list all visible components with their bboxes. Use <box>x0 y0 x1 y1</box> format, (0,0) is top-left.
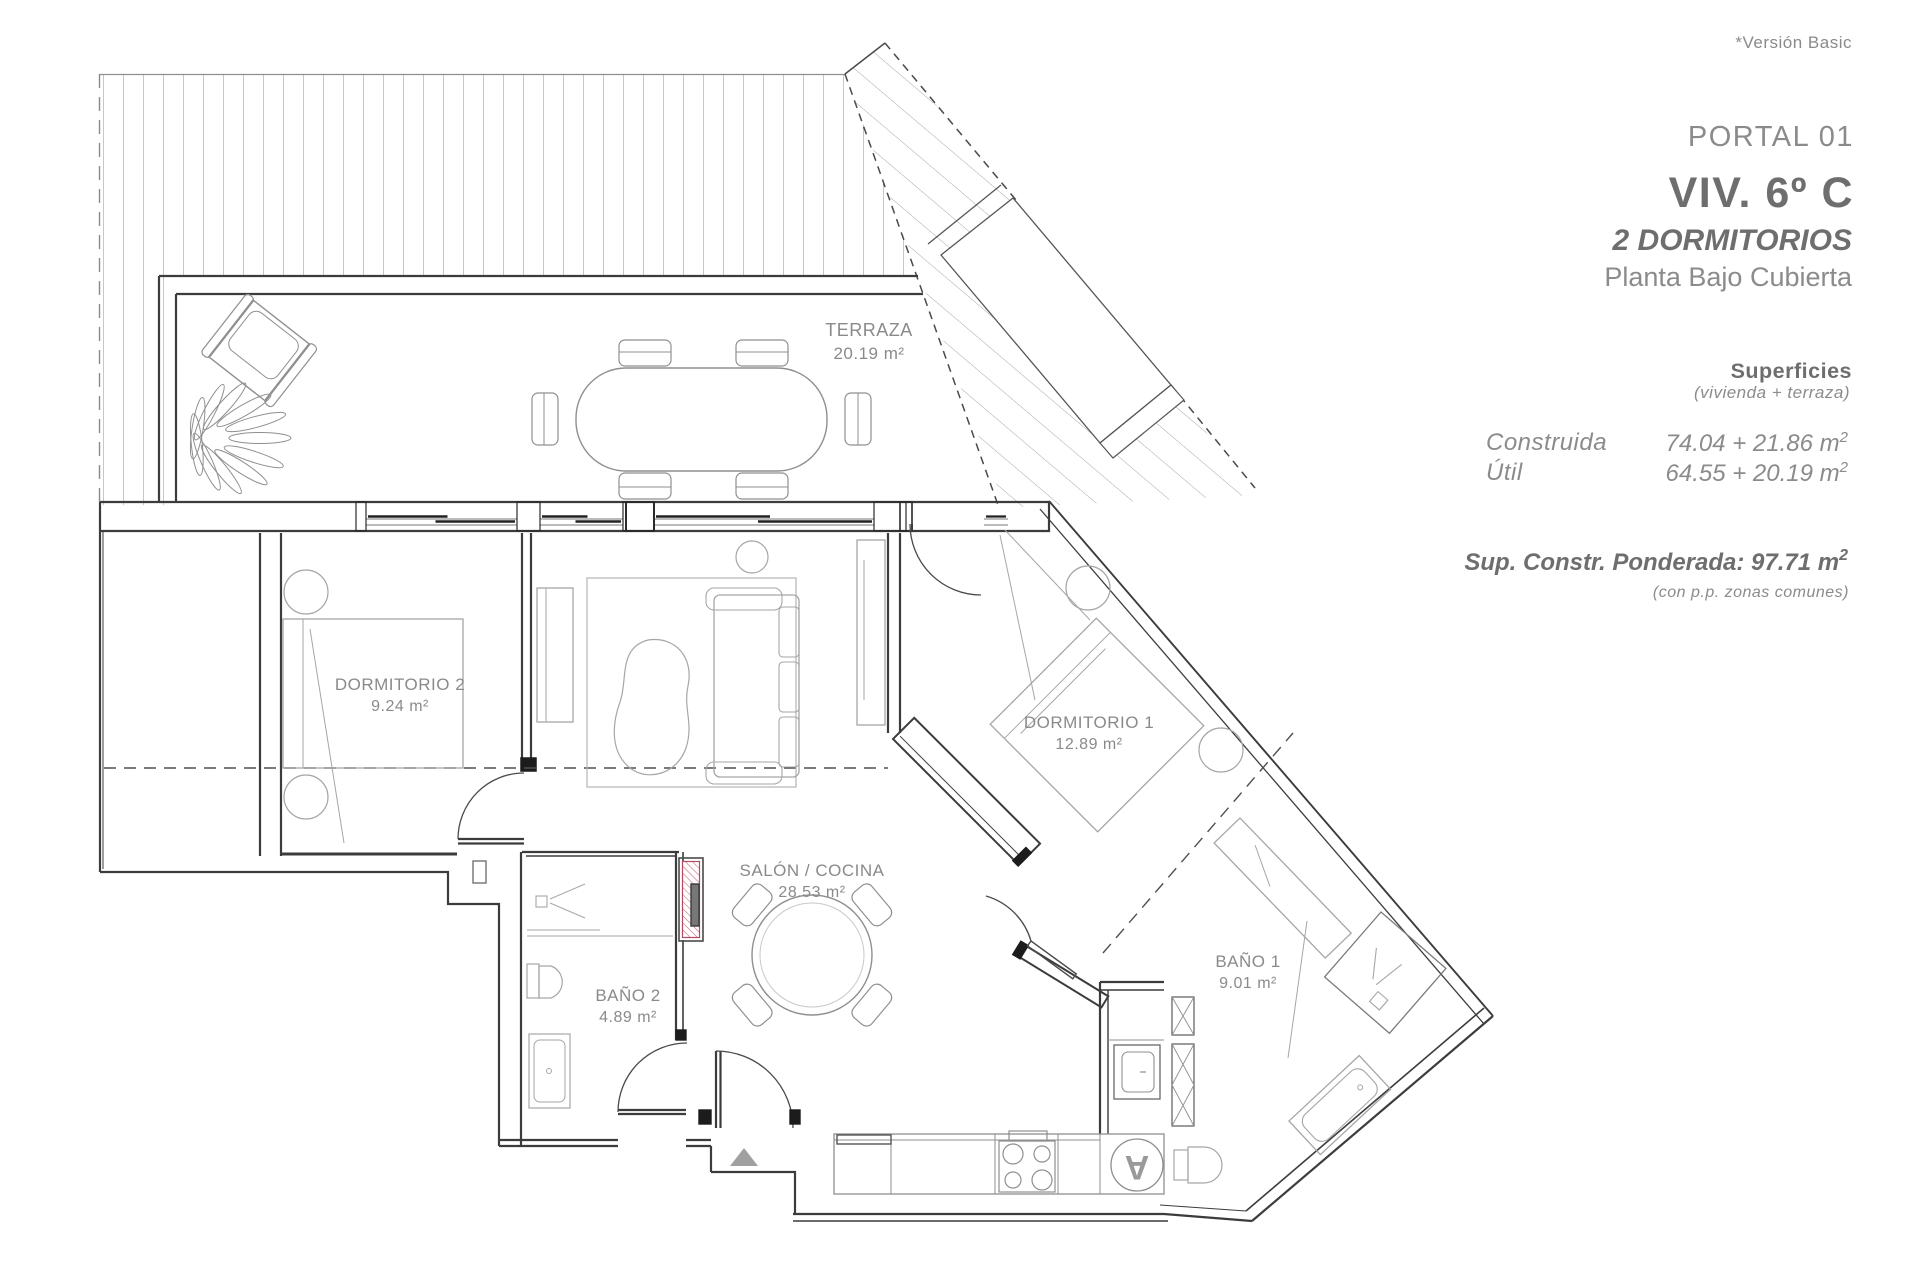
svg-text:Útil: Útil <box>1486 459 1523 486</box>
svg-text:A: A <box>1125 1148 1150 1186</box>
svg-text:9.24 m²: 9.24 m² <box>371 698 429 715</box>
svg-text:28.53 m²: 28.53 m² <box>778 884 845 901</box>
svg-text:SALÓN / COCINA: SALÓN / COCINA <box>740 861 885 880</box>
svg-text:DORMITORIO 1: DORMITORIO 1 <box>1024 713 1154 732</box>
svg-text:20.19 m²: 20.19 m² <box>833 344 904 363</box>
svg-text:4.89 m²: 4.89 m² <box>599 1009 657 1026</box>
svg-text:Construida: Construida <box>1486 429 1607 456</box>
svg-text:BAÑO 2: BAÑO 2 <box>595 986 660 1005</box>
svg-text:9.01 m²: 9.01 m² <box>1219 975 1277 992</box>
svg-text:Superficies: Superficies <box>1731 359 1852 383</box>
svg-text:Sup. Constr. Ponderada: 97.71: Sup. Constr. Ponderada: 97.71 m2 <box>1464 547 1848 576</box>
svg-text:(con p.p. zonas comunes): (con p.p. zonas comunes) <box>1653 584 1849 601</box>
svg-text:64.55 + 20.19 m2: 64.55 + 20.19 m2 <box>1666 459 1849 487</box>
svg-text:VIV. 6º C: VIV. 6º C <box>1669 169 1854 217</box>
svg-text:(vivienda + terraza): (vivienda + terraza) <box>1694 383 1850 402</box>
svg-text:BAÑO 1: BAÑO 1 <box>1215 952 1280 971</box>
svg-text:2 DORMITORIOS: 2 DORMITORIOS <box>1612 224 1852 257</box>
svg-text:12.89 m²: 12.89 m² <box>1055 736 1122 753</box>
svg-text:*Versión Basic: *Versión Basic <box>1735 33 1852 52</box>
svg-text:TERRAZA: TERRAZA <box>825 320 913 340</box>
svg-text:PORTAL 01: PORTAL 01 <box>1688 121 1854 153</box>
svg-text:DORMITORIO 2: DORMITORIO 2 <box>335 675 465 694</box>
svg-text:74.04 + 21.86 m2: 74.04 + 21.86 m2 <box>1666 429 1849 457</box>
svg-text:Planta Bajo Cubierta: Planta Bajo Cubierta <box>1604 262 1853 292</box>
